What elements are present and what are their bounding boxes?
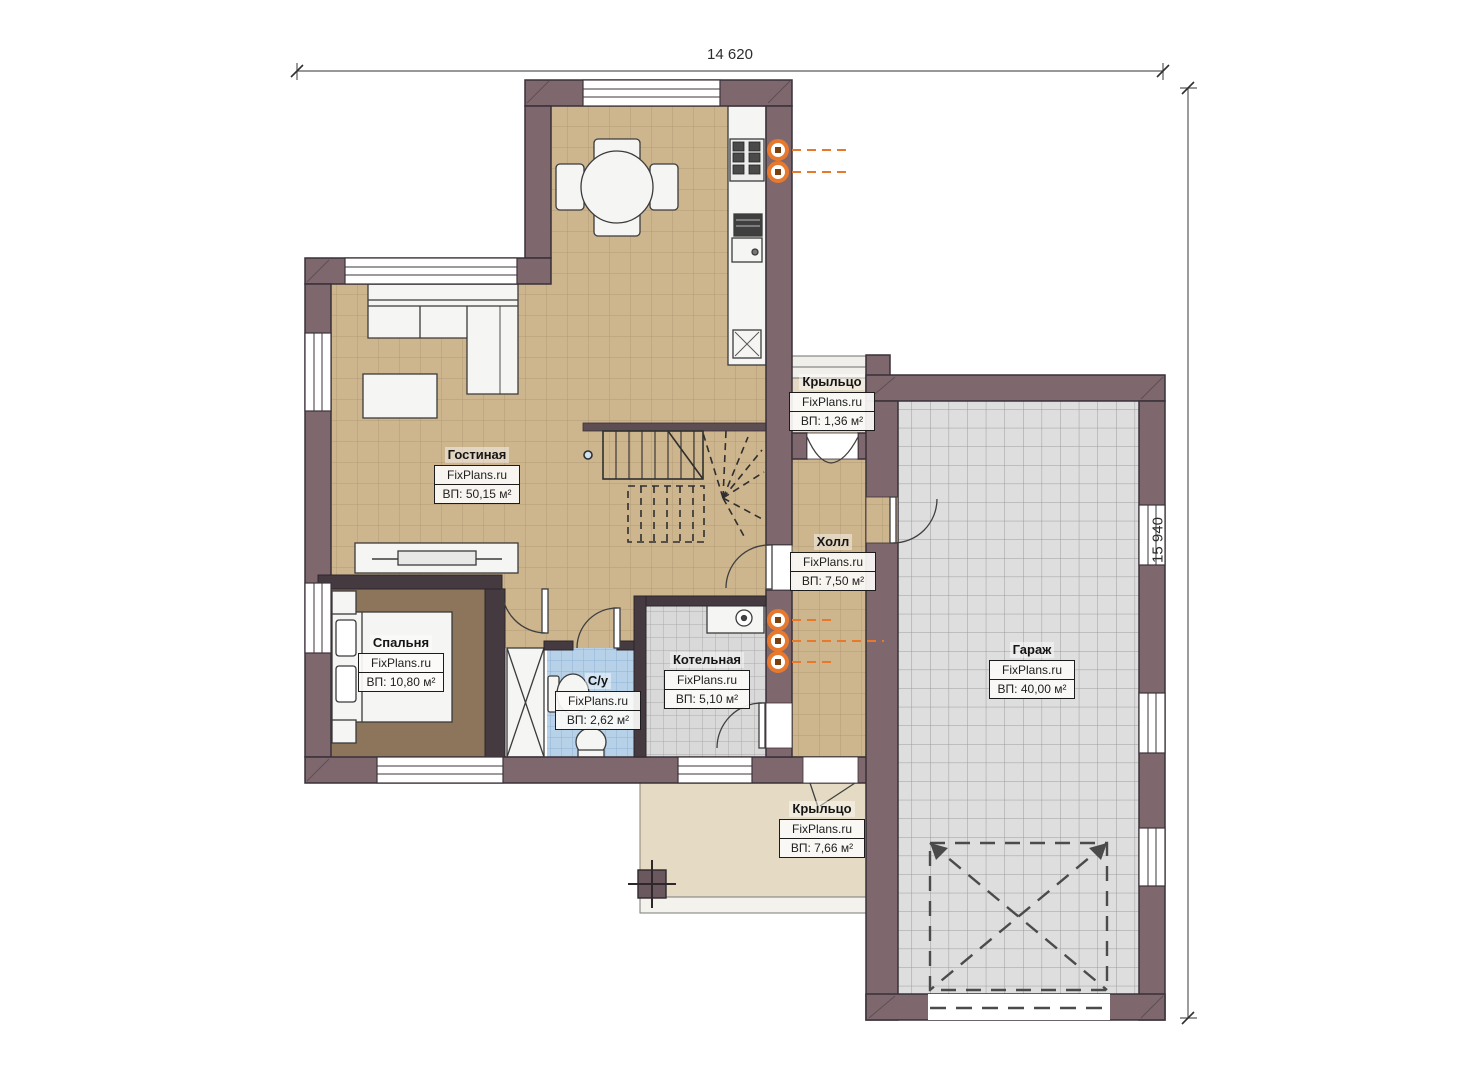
window [583, 80, 720, 106]
porch-top-step [792, 356, 872, 367]
boiler-unit [707, 603, 764, 633]
room-name: Холл [814, 534, 853, 550]
dimension-width-label: 14 620 [707, 46, 753, 63]
watermark: FixPlans.ru [435, 466, 519, 484]
watermark: FixPlans.ru [359, 654, 443, 672]
room-area: ВП: 40,00 м² [990, 679, 1074, 698]
room-label-porch-top: Крыльцо FixPlans.ru ВП: 1,36 м² [789, 373, 875, 431]
window [678, 757, 752, 783]
watermark: FixPlans.ru [990, 661, 1074, 679]
room-label-porch-bottom: Крыльцо FixPlans.ru ВП: 7,66 м² [779, 800, 865, 858]
garage-door [928, 994, 1110, 1020]
watermark: FixPlans.ru [780, 820, 864, 838]
room-name: С/у [585, 673, 611, 689]
window [305, 583, 331, 653]
floor-plan-drawing [0, 0, 1473, 1080]
nightstand [332, 720, 356, 743]
window [1139, 828, 1165, 886]
room-name: Котельная [670, 652, 744, 668]
porch-bottom-step [640, 897, 873, 913]
radiator-icon [769, 141, 846, 159]
room-name: Крыльцо [789, 801, 854, 817]
coffee-table [363, 374, 437, 418]
watermark: FixPlans.ru [790, 393, 874, 411]
hall-floor [792, 433, 866, 760]
window [305, 333, 331, 411]
kitchen-counter [728, 106, 766, 365]
room-name: Крыльцо [799, 374, 864, 390]
watermark: FixPlans.ru [791, 553, 875, 571]
entrance-doorway [807, 433, 858, 459]
watermark: FixPlans.ru [556, 692, 640, 710]
room-label-hall: Холл FixPlans.ru ВП: 7,50 м² [790, 533, 876, 591]
radiator-icon [769, 163, 846, 181]
kitchen-sink [732, 238, 762, 262]
room-area: ВП: 7,66 м² [780, 838, 864, 857]
window [345, 258, 517, 284]
window [377, 757, 503, 783]
watermark: FixPlans.ru [665, 671, 749, 689]
tv-stand [355, 543, 518, 573]
room-area: ВП: 1,36 м² [790, 411, 874, 430]
window [1139, 693, 1165, 753]
room-area: ВП: 2,62 м² [556, 710, 640, 729]
room-area: ВП: 7,50 м² [791, 571, 875, 590]
hob-icon [734, 214, 762, 236]
room-label-boiler: Котельная FixPlans.ru ВП: 5,10 м² [664, 651, 750, 709]
room-label-bathroom: С/у FixPlans.ru ВП: 2,62 м² [555, 672, 641, 730]
bathroom-sink [576, 728, 606, 758]
room-label-garage: Гараж FixPlans.ru ВП: 40,00 м² [989, 641, 1075, 699]
nightstand [332, 591, 356, 614]
room-area: ВП: 50,15 м² [435, 484, 519, 503]
doorway [766, 703, 792, 748]
dishwasher-icon [733, 330, 761, 358]
room-name: Гостиная [445, 447, 510, 463]
wardrobe [507, 648, 544, 757]
room-area: ВП: 10,80 м² [359, 672, 443, 691]
room-label-bedroom: Спальня FixPlans.ru ВП: 10,80 м² [358, 634, 444, 692]
room-label-living: Гостиная FixPlans.ru ВП: 50,15 м² [434, 446, 520, 504]
room-area: ВП: 5,10 м² [665, 689, 749, 708]
dimension-height-label: 15 940 [1150, 517, 1167, 563]
room-name: Гараж [1010, 642, 1055, 658]
room-name: Спальня [370, 635, 432, 651]
floor-plan-page: 14 620 15 940 Гостиная FixPlans.ru ВП: 5… [0, 0, 1473, 1080]
entrance-doorway [803, 757, 858, 783]
